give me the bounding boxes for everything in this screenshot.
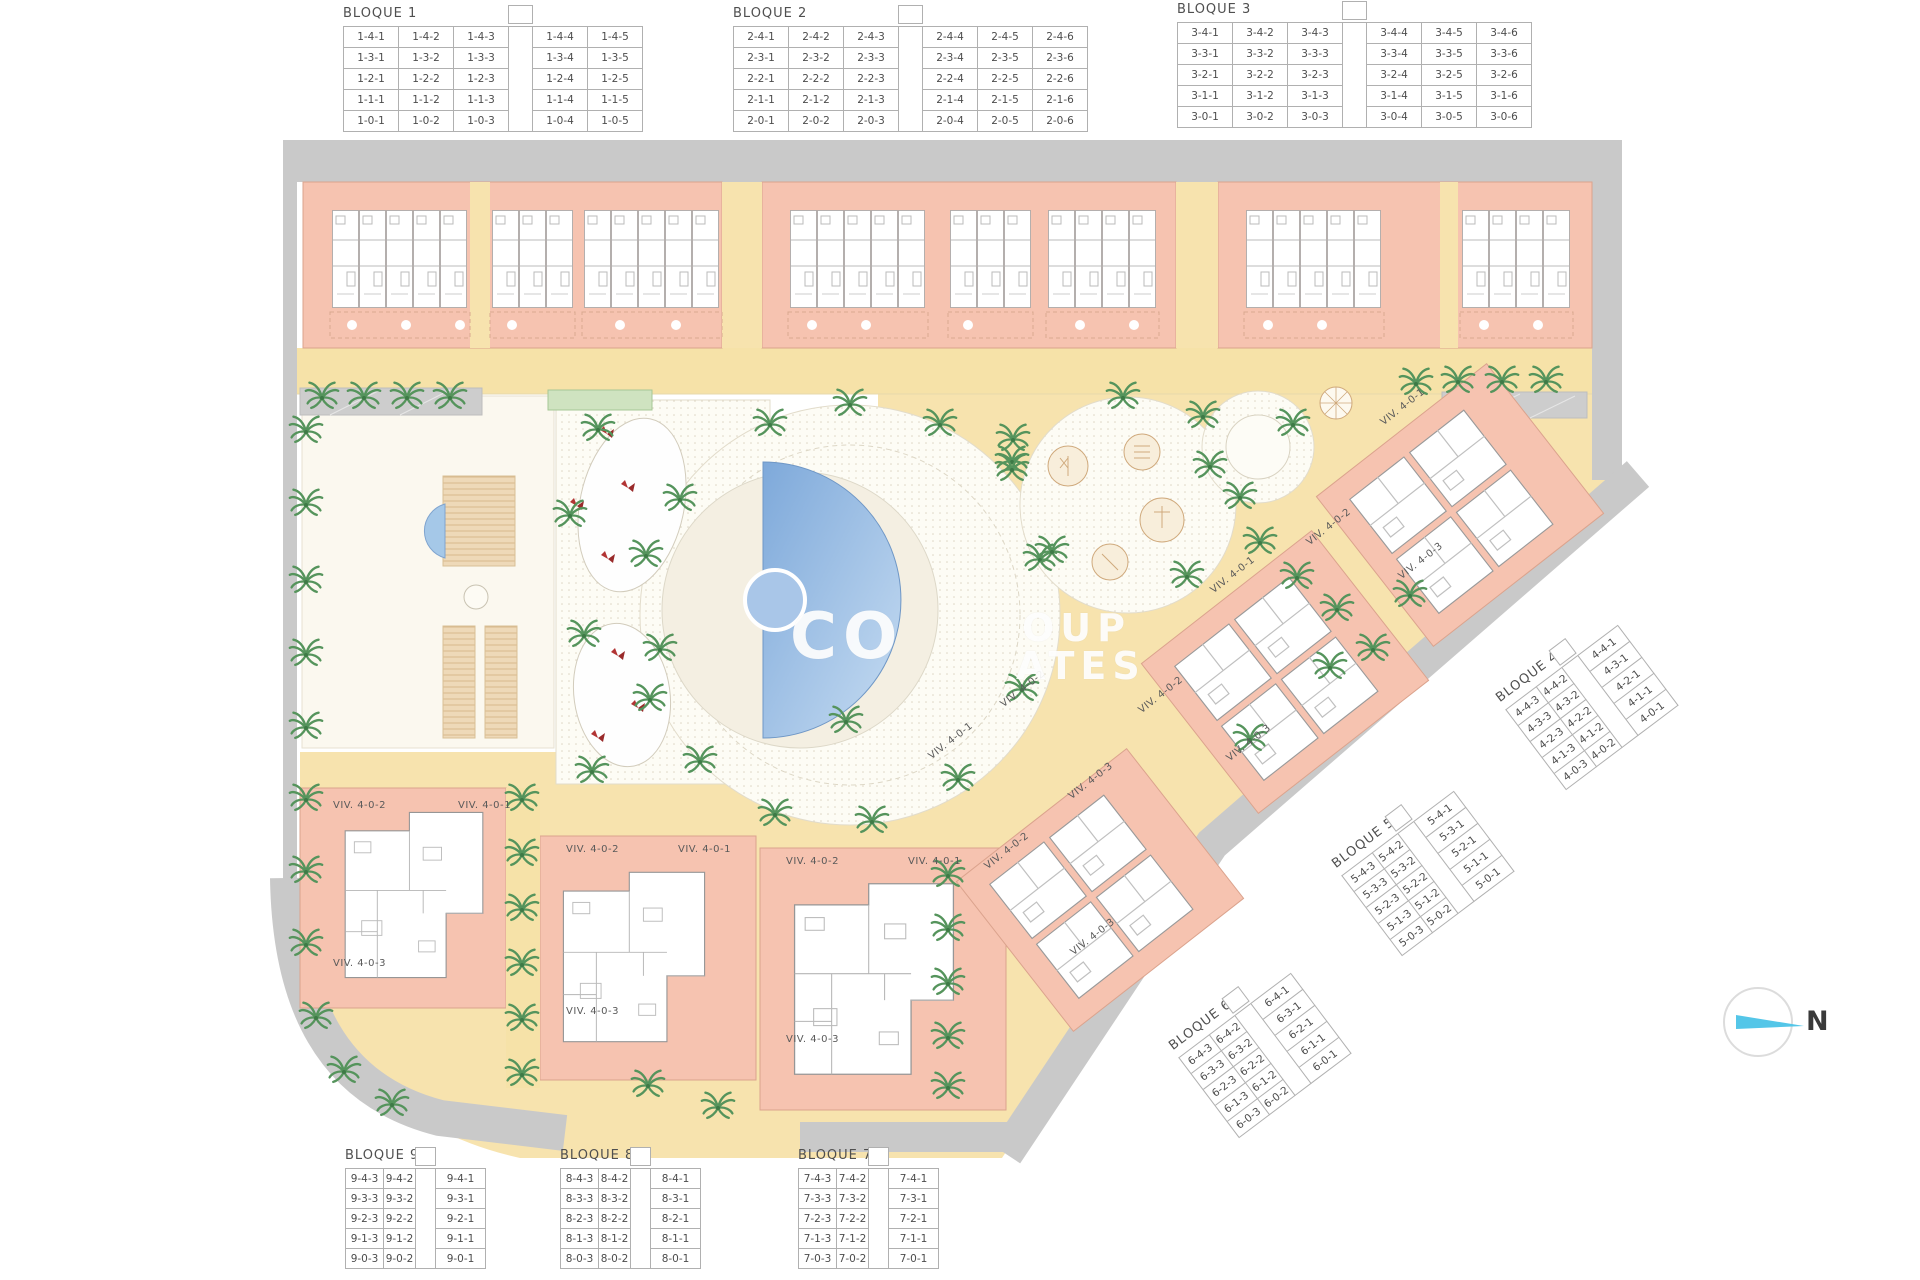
unit-cell-2-2-3[interactable]: 2-2-3 [844, 69, 899, 90]
unit-cell-3-0-3[interactable]: 3-0-3 [1288, 107, 1343, 128]
unit-cell-1-1-5[interactable]: 1-1-5 [588, 90, 643, 111]
bloque-1-title: BLOQUE 1 [343, 4, 643, 26]
gap-column [416, 1169, 436, 1269]
unit-cell-8-0-2[interactable]: 8-0-2 [599, 1249, 631, 1269]
bloque-9-legend-box [415, 1147, 436, 1166]
unit-cell-3-4-5[interactable]: 3-4-5 [1422, 23, 1477, 44]
unit-cell-2-3-4[interactable]: 2-3-4 [923, 48, 978, 69]
unit-cell-2-0-4[interactable]: 2-0-4 [923, 111, 978, 132]
unit-cell-9-4-2[interactable]: 9-4-2 [384, 1169, 416, 1189]
unit-cell-8-4-2[interactable]: 8-4-2 [599, 1169, 631, 1189]
unit-cell-8-1-2[interactable]: 8-1-2 [599, 1229, 631, 1249]
unit-cell-3-2-3[interactable]: 3-2-3 [1288, 65, 1343, 86]
unit-cell-1-0-4[interactable]: 1-0-4 [533, 111, 588, 132]
unit-cell-8-4-1[interactable]: 8-4-1 [651, 1169, 701, 1189]
unit-cell-3-1-5[interactable]: 3-1-5 [1422, 86, 1477, 107]
unit-cell-1-4-4[interactable]: 1-4-4 [533, 27, 588, 48]
unit-cell-1-1-2[interactable]: 1-1-2 [399, 90, 454, 111]
buildings-top [303, 182, 1592, 348]
unit-cell-9-4-3[interactable]: 9-4-3 [346, 1169, 384, 1189]
unit-cell-2-4-2[interactable]: 2-4-2 [789, 27, 844, 48]
unit-cell-8-3-2[interactable]: 8-3-2 [599, 1189, 631, 1209]
unit-cell-2-4-6[interactable]: 2-4-6 [1033, 27, 1088, 48]
unit-cell-3-4-3[interactable]: 3-4-3 [1288, 23, 1343, 44]
unit-cell-2-0-2[interactable]: 2-0-2 [789, 111, 844, 132]
bloque-3: BLOQUE 33-4-13-3-13-2-13-1-13-0-13-4-23-… [1177, 0, 1532, 128]
unit-cell-9-1-2[interactable]: 9-1-2 [384, 1229, 416, 1249]
unit-cell-3-4-1[interactable]: 3-4-1 [1178, 23, 1233, 44]
viv-label: VIV. 4-0-1 [908, 856, 961, 867]
unit-cell-3-4-4[interactable]: 3-4-4 [1367, 23, 1422, 44]
viv-label: VIV. 4-0-2 [786, 856, 839, 867]
unit-cell-1-2-1[interactable]: 1-2-1 [344, 69, 399, 90]
corridor [1176, 182, 1218, 348]
unit-cell-7-2-3[interactable]: 7-2-3 [799, 1209, 837, 1229]
gap-column [1343, 23, 1367, 128]
viv-label: VIV. 4-0-3 [786, 1034, 839, 1045]
unit-cell-9-1-3[interactable]: 9-1-3 [346, 1229, 384, 1249]
unit-cell-1-4-2[interactable]: 1-4-2 [399, 27, 454, 48]
corridor [470, 182, 490, 348]
unit-cell-9-1-1[interactable]: 9-1-1 [436, 1229, 486, 1249]
unit-cell-1-4-1[interactable]: 1-4-1 [344, 27, 399, 48]
unit-cell-7-3-3[interactable]: 7-3-3 [799, 1189, 837, 1209]
bloque-8: BLOQUE 88-4-38-3-38-2-38-1-38-0-38-4-28-… [560, 1146, 701, 1269]
unit-cell-1-0-3[interactable]: 1-0-3 [454, 111, 509, 132]
unit-cell-2-2-5[interactable]: 2-2-5 [978, 69, 1033, 90]
unit-cell-8-1-1[interactable]: 8-1-1 [651, 1229, 701, 1249]
unit-cell-1-1-4[interactable]: 1-1-4 [533, 90, 588, 111]
unit-cell-2-0-5[interactable]: 2-0-5 [978, 111, 1033, 132]
bloque-2: BLOQUE 22-4-12-3-12-2-12-1-12-0-12-4-22-… [733, 4, 1088, 132]
unit-cell-8-2-1[interactable]: 8-2-1 [651, 1209, 701, 1229]
corridor [722, 182, 762, 348]
unit-cell-3-1-4[interactable]: 3-1-4 [1367, 86, 1422, 107]
fountain-compass [1320, 387, 1352, 419]
unit-cell-1-3-3[interactable]: 1-3-3 [454, 48, 509, 69]
unit-cell-7-0-2[interactable]: 7-0-2 [837, 1249, 869, 1269]
unit-cell-3-1-1[interactable]: 3-1-1 [1178, 86, 1233, 107]
unit-cell-3-3-6[interactable]: 3-3-6 [1477, 44, 1532, 65]
unit-cell-2-0-1[interactable]: 2-0-1 [734, 111, 789, 132]
unit-cell-8-2-3[interactable]: 8-2-3 [561, 1209, 599, 1229]
unit-cell-3-2-2[interactable]: 3-2-2 [1233, 65, 1288, 86]
unit-cell-2-3-3[interactable]: 2-3-3 [844, 48, 899, 69]
bloque-7: BLOQUE 77-4-37-3-37-2-37-1-37-0-37-4-27-… [798, 1146, 939, 1269]
top-road [297, 140, 1622, 182]
unit-cell-9-3-1[interactable]: 9-3-1 [436, 1189, 486, 1209]
viv-label: VIV. 4-0-2 [333, 800, 386, 811]
palm-walk [506, 788, 540, 1088]
unit-cell-7-2-1[interactable]: 7-2-1 [889, 1209, 939, 1229]
unit-cell-8-3-3[interactable]: 8-3-3 [561, 1189, 599, 1209]
unit-cell-3-2-1[interactable]: 3-2-1 [1178, 65, 1233, 86]
round-planter [464, 585, 488, 609]
hedge [548, 390, 652, 410]
unit-cell-7-0-1[interactable]: 7-0-1 [889, 1249, 939, 1269]
gap-column [869, 1169, 889, 1269]
unit-cell-2-0-3[interactable]: 2-0-3 [844, 111, 899, 132]
unit-cell-9-3-2[interactable]: 9-3-2 [384, 1189, 416, 1209]
wood-deck [443, 476, 515, 566]
unit-cell-9-0-1[interactable]: 9-0-1 [436, 1249, 486, 1269]
unit-cell-2-3-1[interactable]: 2-3-1 [734, 48, 789, 69]
unit-cell-2-1-4[interactable]: 2-1-4 [923, 90, 978, 111]
unit-cell-2-2-1[interactable]: 2-2-1 [734, 69, 789, 90]
unit-cell-1-0-1[interactable]: 1-0-1 [344, 111, 399, 132]
bloque-1-legend-box [508, 5, 533, 24]
unit-cell-3-2-6[interactable]: 3-2-6 [1477, 65, 1532, 86]
bloque-7-legend-box [868, 1147, 889, 1166]
unit-cell-8-2-2[interactable]: 8-2-2 [599, 1209, 631, 1229]
unit-cell-7-0-3[interactable]: 7-0-3 [799, 1249, 837, 1269]
unit-cell-9-4-1[interactable]: 9-4-1 [436, 1169, 486, 1189]
viv-label: VIV. 4-0-1 [678, 844, 731, 855]
unit-cell-2-2-6[interactable]: 2-2-6 [1033, 69, 1088, 90]
unit-cell-3-2-4[interactable]: 3-2-4 [1367, 65, 1422, 86]
bloque-2-legend-box [898, 5, 923, 24]
unit-cell-2-0-6[interactable]: 2-0-6 [1033, 111, 1088, 132]
bloque-9: BLOQUE 99-4-39-3-39-2-39-1-39-0-39-4-29-… [345, 1146, 486, 1269]
bloque-3-legend-box [1342, 1, 1367, 20]
unit-cell-2-4-4[interactable]: 2-4-4 [923, 27, 978, 48]
unit-cell-2-1-6[interactable]: 2-1-6 [1033, 90, 1088, 111]
site-plan [0, 0, 1920, 1280]
unit-cell-8-3-1[interactable]: 8-3-1 [651, 1189, 701, 1209]
unit-cell-9-0-2[interactable]: 9-0-2 [384, 1249, 416, 1269]
pergola [485, 626, 517, 738]
unit-cell-7-4-3[interactable]: 7-4-3 [799, 1169, 837, 1189]
unit-cell-8-1-3[interactable]: 8-1-3 [561, 1229, 599, 1249]
unit-cell-7-3-1[interactable]: 7-3-1 [889, 1189, 939, 1209]
bloque-8-legend-box [630, 1147, 651, 1166]
promenade-path [297, 348, 1592, 394]
unit-cell-2-1-1[interactable]: 2-1-1 [734, 90, 789, 111]
viv-label: VIV. 4-0-2 [566, 844, 619, 855]
unit-cell-1-0-2[interactable]: 1-0-2 [399, 111, 454, 132]
corridor [1440, 182, 1458, 348]
unit-cell-1-2-5[interactable]: 1-2-5 [588, 69, 643, 90]
unit-cell-7-1-3[interactable]: 7-1-3 [799, 1229, 837, 1249]
unit-cell-8-4-3[interactable]: 8-4-3 [561, 1169, 599, 1189]
unit-cell-2-3-2[interactable]: 2-3-2 [789, 48, 844, 69]
unit-cell-7-1-2[interactable]: 7-1-2 [837, 1229, 869, 1249]
unit-cell-3-0-5[interactable]: 3-0-5 [1422, 107, 1477, 128]
unit-cell-3-3-3[interactable]: 3-3-3 [1288, 44, 1343, 65]
unit-cell-3-4-2[interactable]: 3-4-2 [1233, 23, 1288, 44]
unit-cell-1-4-5[interactable]: 1-4-5 [588, 27, 643, 48]
unit-cell-8-0-1[interactable]: 8-0-1 [651, 1249, 701, 1269]
pool-island [745, 570, 805, 630]
unit-cell-1-3-5[interactable]: 1-3-5 [588, 48, 643, 69]
gap-column [631, 1169, 651, 1269]
north-label: N [1806, 1006, 1829, 1037]
unit-cell-7-2-2[interactable]: 7-2-2 [837, 1209, 869, 1229]
unit-cell-2-4-3[interactable]: 2-4-3 [844, 27, 899, 48]
unit-cell-1-3-2[interactable]: 1-3-2 [399, 48, 454, 69]
unit-cell-2-1-3[interactable]: 2-1-3 [844, 90, 899, 111]
unit-cell-3-2-5[interactable]: 3-2-5 [1422, 65, 1477, 86]
right-road [1592, 140, 1622, 480]
unit-cell-9-2-3[interactable]: 9-2-3 [346, 1209, 384, 1229]
unit-cell-1-2-3[interactable]: 1-2-3 [454, 69, 509, 90]
unit-cell-1-3-1[interactable]: 1-3-1 [344, 48, 399, 69]
viv-label: VIV. 4-0-3 [566, 1006, 619, 1017]
unit-cell-2-4-1[interactable]: 2-4-1 [734, 27, 789, 48]
unit-cell-3-1-3[interactable]: 3-1-3 [1288, 86, 1343, 107]
unit-cell-9-0-3[interactable]: 9-0-3 [346, 1249, 384, 1269]
unit-cell-3-4-6[interactable]: 3-4-6 [1477, 23, 1532, 44]
unit-cell-9-2-1[interactable]: 9-2-1 [436, 1209, 486, 1229]
unit-cell-9-2-2[interactable]: 9-2-2 [384, 1209, 416, 1229]
unit-cell-7-1-1[interactable]: 7-1-1 [889, 1229, 939, 1249]
unit-cell-1-0-5[interactable]: 1-0-5 [588, 111, 643, 132]
unit-cell-3-3-5[interactable]: 3-3-5 [1422, 44, 1477, 65]
unit-cell-3-3-2[interactable]: 3-3-2 [1233, 44, 1288, 65]
viv-label: VIV. 4-0-1 [458, 800, 511, 811]
unit-cell-2-3-5[interactable]: 2-3-5 [978, 48, 1033, 69]
unit-cell-1-1-3[interactable]: 1-1-3 [454, 90, 509, 111]
unit-cell-3-3-4[interactable]: 3-3-4 [1367, 44, 1422, 65]
unit-cell-3-0-1[interactable]: 3-0-1 [1178, 107, 1233, 128]
unit-cell-1-4-3[interactable]: 1-4-3 [454, 27, 509, 48]
unit-cell-2-1-2[interactable]: 2-1-2 [789, 90, 844, 111]
unit-cell-1-2-4[interactable]: 1-2-4 [533, 69, 588, 90]
unit-cell-7-4-2[interactable]: 7-4-2 [837, 1169, 869, 1189]
bloque-1: BLOQUE 11-4-11-3-11-2-11-1-11-0-11-4-21-… [343, 4, 643, 132]
unit-cell-3-1-2[interactable]: 3-1-2 [1233, 86, 1288, 107]
unit-cell-7-3-2[interactable]: 7-3-2 [837, 1189, 869, 1209]
gap-column [509, 27, 533, 132]
unit-cell-3-0-6[interactable]: 3-0-6 [1477, 107, 1532, 128]
unit-cell-7-4-1[interactable]: 7-4-1 [889, 1169, 939, 1189]
unit-cell-9-3-3[interactable]: 9-3-3 [346, 1189, 384, 1209]
unit-cell-2-4-5[interactable]: 2-4-5 [978, 27, 1033, 48]
unit-cell-8-0-3[interactable]: 8-0-3 [561, 1249, 599, 1269]
unit-cell-1-3-4[interactable]: 1-3-4 [533, 48, 588, 69]
viv-label: VIV. 4-0-3 [333, 958, 386, 969]
gap-column [899, 27, 923, 132]
unit-cell-3-0-4[interactable]: 3-0-4 [1367, 107, 1422, 128]
unit-cell-2-2-4[interactable]: 2-2-4 [923, 69, 978, 90]
pergola [443, 626, 475, 738]
unit-cell-1-1-1[interactable]: 1-1-1 [344, 90, 399, 111]
north-indicator [1724, 988, 1804, 1056]
unit-cell-3-0-2[interactable]: 3-0-2 [1233, 107, 1288, 128]
unit-cell-2-1-5[interactable]: 2-1-5 [978, 90, 1033, 111]
unit-cell-1-2-2[interactable]: 1-2-2 [399, 69, 454, 90]
unit-cell-2-3-6[interactable]: 2-3-6 [1033, 48, 1088, 69]
unit-cell-3-3-1[interactable]: 3-3-1 [1178, 44, 1233, 65]
unit-cell-3-1-6[interactable]: 3-1-6 [1477, 86, 1532, 107]
unit-cell-2-2-2[interactable]: 2-2-2 [789, 69, 844, 90]
